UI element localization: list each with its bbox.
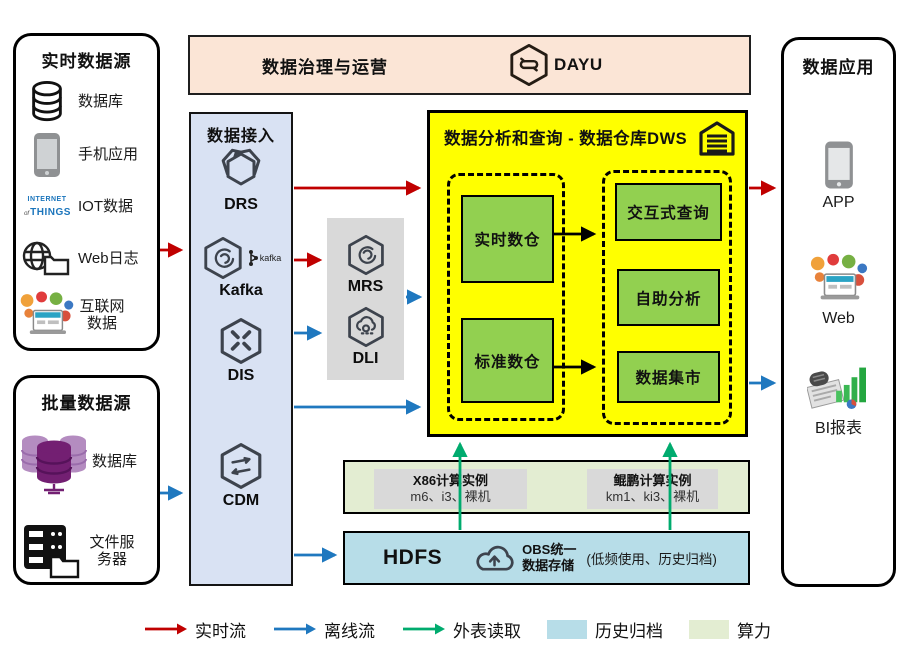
source-item-label: 互联网数据 bbox=[78, 298, 126, 333]
dli-icon bbox=[345, 306, 387, 348]
source-item-iot: INTERNET ofTHINGS IOT数据 bbox=[16, 181, 157, 233]
drs-icon bbox=[216, 144, 266, 194]
external-read-arrow-icon bbox=[401, 622, 445, 636]
x86-instances: X86计算实例 m6、i3、裸机 bbox=[374, 469, 527, 509]
legend-item-realtime: 实时流 bbox=[143, 617, 246, 642]
compute-bar: X86计算实例 m6、i3、裸机 鲲鹏计算实例 km1、ki3、裸机 bbox=[343, 460, 750, 514]
kafka-icon bbox=[201, 236, 245, 280]
architecture-diagram: 实时数据源 数据库 手机应用 INTERNET ofTHINGS IOT数据 bbox=[0, 0, 914, 651]
source-item-label: 数据库 bbox=[92, 453, 137, 470]
module-standard-warehouse: 标准数仓 bbox=[461, 318, 554, 403]
batch-sources-panel: 批量数据源 数据库 文件服务器 bbox=[13, 375, 160, 585]
source-item-batch-database: 数据库 bbox=[16, 416, 157, 508]
web-collage-icon bbox=[808, 252, 870, 306]
module-data-mart: 数据集市 bbox=[617, 351, 720, 403]
app-phone-icon bbox=[823, 140, 855, 190]
source-item-label: 数据库 bbox=[78, 93, 123, 110]
legend: 实时流 离线流 外表读取 历史归档 算力 bbox=[0, 612, 914, 646]
app-item-app: APP bbox=[784, 140, 893, 212]
web-log-icon bbox=[16, 239, 78, 279]
mobile-phone-icon bbox=[16, 132, 78, 178]
realtime-sources-panel: 实时数据源 数据库 手机应用 INTERNET ofTHINGS IOT数据 bbox=[13, 33, 160, 351]
batch-sources-title: 批量数据源 bbox=[16, 389, 157, 414]
service-drs: DRS bbox=[191, 144, 291, 214]
source-item-label: IOT数据 bbox=[78, 198, 133, 215]
service-cdm: CDM bbox=[191, 442, 291, 510]
ingestion-column: 数据接入 DRS kafka Kafka DIS CDM bbox=[189, 112, 293, 586]
processing-panel: MRS DLI bbox=[327, 218, 404, 380]
internet-collage-icon bbox=[16, 290, 78, 340]
legend-item-archive: 历史归档 bbox=[547, 617, 663, 642]
app-item-bi: BI报表 bbox=[784, 356, 893, 438]
service-kafka: kafka Kafka bbox=[191, 236, 291, 300]
ingestion-title: 数据接入 bbox=[191, 122, 291, 146]
module-interactive-query: 交互式查询 bbox=[615, 183, 722, 241]
offline-flow-arrow-icon bbox=[272, 622, 316, 636]
storage-note: (低频使用、历史归档) bbox=[586, 548, 717, 568]
source-item-label: Web日志 bbox=[78, 250, 139, 267]
legend-item-compute: 算力 bbox=[689, 617, 771, 642]
realtime-flow-arrow-icon bbox=[143, 622, 187, 636]
database-cluster-icon bbox=[16, 429, 92, 495]
compute-power-swatch bbox=[689, 620, 729, 639]
dis-icon bbox=[217, 317, 265, 365]
module-realtime-warehouse: 实时数仓 bbox=[461, 195, 554, 283]
obs-cloud-icon bbox=[472, 540, 518, 576]
dayu-icon bbox=[508, 43, 550, 87]
hdfs-label: HDFS bbox=[383, 546, 442, 570]
source-item-weblog: Web日志 bbox=[16, 233, 157, 285]
legend-item-offline: 离线流 bbox=[272, 617, 375, 642]
legend-item-external-read: 外表读取 bbox=[401, 617, 521, 642]
module-selfservice-analysis: 自助分析 bbox=[617, 269, 720, 326]
source-item-label: 文件服务器 bbox=[86, 534, 138, 569]
kafka-logo: kafka bbox=[247, 249, 282, 267]
dayu-label: DAYU bbox=[554, 55, 603, 75]
source-item-label: 手机应用 bbox=[78, 146, 138, 163]
database-icon bbox=[16, 80, 78, 124]
obs-label: OBS统一 数据存储 bbox=[522, 542, 576, 575]
service-dli: DLI bbox=[327, 306, 404, 368]
app-item-web: Web bbox=[784, 252, 893, 328]
source-item-file-server: 文件服务器 bbox=[16, 508, 157, 594]
source-item-mobile: 手机应用 bbox=[16, 128, 157, 181]
dayu-product: DAYU bbox=[508, 43, 603, 87]
source-item-database: 数据库 bbox=[16, 76, 157, 128]
service-dis: DIS bbox=[191, 317, 291, 385]
governance-banner: 数据治理与运营 DAYU bbox=[188, 35, 751, 95]
file-server-icon bbox=[16, 523, 86, 579]
mrs-icon bbox=[345, 234, 387, 276]
kunpeng-instances: 鲲鹏计算实例 km1、ki3、裸机 bbox=[587, 469, 718, 509]
warehouse-panel: 数据分析和查询 - 数据仓库DWS 实时数仓 标准数仓 交互式查询 自助分析 数… bbox=[427, 110, 748, 437]
realtime-sources-title: 实时数据源 bbox=[16, 47, 157, 72]
source-item-internet: 互联网数据 bbox=[16, 285, 157, 345]
storage-bar: HDFS OBS统一 数据存储 (低频使用、历史归档) bbox=[343, 531, 750, 585]
governance-title: 数据治理与运营 bbox=[262, 53, 388, 78]
history-archive-swatch bbox=[547, 620, 587, 639]
service-mrs: MRS bbox=[327, 234, 404, 296]
warehouse-title: 数据分析和查询 - 数据仓库DWS bbox=[444, 125, 714, 149]
warehouse-icon bbox=[697, 120, 737, 158]
iot-wordcloud-icon: INTERNET ofTHINGS bbox=[16, 196, 78, 219]
applications-title: 数据应用 bbox=[784, 53, 893, 78]
bi-report-icon bbox=[807, 356, 871, 410]
applications-panel: 数据应用 APP Web BI报表 bbox=[781, 37, 896, 587]
cdm-icon bbox=[217, 442, 265, 490]
